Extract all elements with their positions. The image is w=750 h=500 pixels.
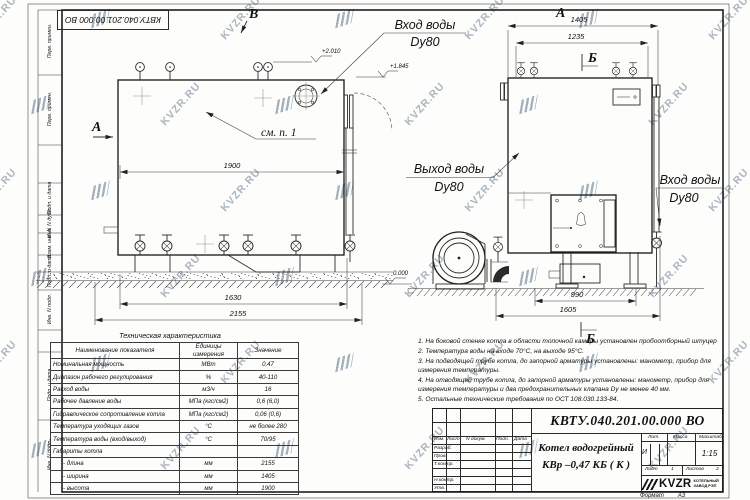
tech-table-cell: 0,06 (0,6) (238, 408, 299, 420)
tech-table-cell: 70/95 (238, 433, 299, 445)
tb-sheet-label: Лист (645, 467, 658, 472)
elevation-mark-pipe: +1.845 (356, 64, 409, 77)
view-arrow-b: В (241, 7, 258, 33)
drawing-sheet: KVZR.RUKVZR.RUKVZR.RUKVZR.RUKVZR.RUKVZR.… (0, 0, 750, 500)
format-value: А3 (678, 493, 685, 499)
furnace-door (551, 195, 616, 252)
inlet-label-side: Вход воды Dy80 (656, 173, 723, 226)
tech-table-cell: Номинальная мощность (51, 359, 180, 371)
svg-text:+2.010: +2.010 (322, 49, 341, 55)
tech-table-cell: Габариты котла (51, 445, 180, 457)
flue-panel (613, 89, 640, 105)
margin-label: Инв. N подл. (47, 279, 53, 339)
svg-text:Dy80: Dy80 (410, 35, 439, 49)
tech-table-row: Рабочее давление водыМПа (кгс/см2)0,6 (6… (51, 396, 299, 408)
tb-row-nkontr: Н.контр. (434, 478, 455, 483)
top-valves (517, 63, 637, 78)
tb-sheets-label: Листов (686, 467, 704, 472)
tech-table-cell: МПа (кгс/см2) (180, 408, 238, 420)
svg-text:+1.845: +1.845 (390, 64, 409, 70)
pressure-gauge-icon (136, 63, 145, 80)
format-label: Формат (640, 493, 664, 499)
tb-lit-value: И (642, 449, 647, 456)
see-ref-callout: см. п. 1 (206, 112, 316, 139)
tech-table-cell: не более 280 (238, 420, 299, 432)
tb-row-prov: Пров. (434, 454, 447, 459)
tech-table-cell: 16 (238, 383, 299, 395)
pressure-gauge-icon (254, 63, 263, 80)
outlet-label-side: Выход воды Dy80 (406, 153, 519, 194)
tb-mass-label: Масса (673, 435, 687, 440)
view-arrow-a-front: А (91, 120, 113, 137)
tb-col-izm: Изм. (434, 437, 444, 442)
tech-table-row: Гидравлическое сопротивление котлаМПа (к… (51, 408, 299, 420)
tb-logo: KVZR КОТЕЛЬНЫЙ ЗАВОД РЭП (641, 475, 724, 493)
pressure-gauge-icon (264, 63, 273, 80)
tech-table-cell: Диапазон рабочего регулирования (51, 371, 180, 383)
tech-table-header-row: Наименование показателя Единицы измерени… (51, 343, 299, 359)
tech-table-row: Диапазон рабочего регулирования%40-110 (51, 371, 299, 383)
technical-notes: 1. На боковой стенке котла в области топ… (418, 337, 720, 405)
tech-table-cell: Температура воды (вход/выход) (51, 433, 180, 445)
tech-table-cell: Расход воды (51, 383, 180, 395)
tech-table-cell: МПа (кгс/см2) (180, 396, 238, 408)
svg-text:1605: 1605 (560, 305, 578, 314)
svg-text:2155: 2155 (229, 309, 248, 318)
title-block: Изм. Лист N докум. Подп. Дата Разраб. Пр… (432, 408, 723, 492)
tech-table-cell: °С (180, 433, 238, 445)
note-item: 5. Остальные технические требования по О… (418, 395, 720, 404)
hatch-lines (37, 274, 392, 279)
svg-text:1630: 1630 (225, 293, 243, 302)
tech-table-cell: мм (180, 482, 238, 494)
tech-table-cell: 2155 (238, 458, 299, 470)
tech-table-row: Габариты котла (51, 445, 299, 457)
tech-table-cell (238, 445, 299, 457)
tech-table: Наименование показателя Единицы измерени… (50, 342, 299, 495)
inlet-label-front: Вход воды Dy80 (321, 18, 466, 94)
dim-1900: 1900 (120, 161, 344, 179)
svg-text:1235: 1235 (568, 32, 586, 41)
tech-table-cell: мм (180, 470, 238, 482)
svg-text:1900: 1900 (224, 161, 242, 170)
tb-product-line1: Котел водогрейный (531, 440, 641, 457)
side-view: А 1405 1235 Б (382, 6, 723, 347)
tech-table-header: Наименование показателя (51, 343, 180, 359)
front-view: +2.010 +1.845 Вход воды Dy80 В (36, 7, 466, 325)
water-inlet-flange (292, 82, 320, 110)
kvzr-logo-subtitle: КОТЕЛЬНЫЙ ЗАВОД РЭП (694, 479, 719, 489)
tech-table-cell: 1900 (238, 482, 299, 494)
svg-text:Б: Б (587, 51, 597, 66)
tech-table-cell: - ширина (51, 470, 180, 482)
dim-2155: 2155 (95, 282, 362, 325)
tech-table-cell: Температура уходящих газов (51, 420, 180, 432)
margin-label: Перв. примен. (47, 11, 53, 71)
tech-table-row: - ширинамм1405 (51, 470, 299, 482)
tech-table-cell: - длина (51, 458, 180, 470)
tb-col-podp: Подп. (496, 437, 509, 442)
tech-table-cell: м3/ч (180, 383, 238, 395)
note-item: 4. На отводящей трубе котла, до запорной… (418, 376, 720, 395)
outlet-pipe-front (342, 93, 392, 262)
format-note: ФорматА3 (640, 493, 740, 499)
tech-table-cell: мм (180, 458, 238, 470)
tech-table-cell: 0,47 (238, 359, 299, 371)
door-handle (577, 213, 586, 226)
supports-side (549, 252, 646, 288)
tech-table-row: Температура воды (вход/выход)°С70/95 (51, 433, 299, 445)
tb-product-line2: КВр –0,47 КБ ( К ) (531, 457, 641, 474)
tb-col-list: Лист (447, 437, 460, 442)
tech-table-cell: Рабочее давление воды (51, 396, 180, 408)
tb-scale-label: Масштаб (699, 435, 722, 440)
outlet-flange-side (501, 83, 509, 100)
tech-characteristics: Техническая характеристика Наименование … (50, 331, 290, 495)
tb-doc-number: КВТУ.040.201.00.000 ВО (531, 409, 724, 433)
tb-row-utv: Утв. (434, 486, 445, 491)
tb-lit-label: Лит. (648, 435, 659, 440)
tech-table-cell: % (180, 371, 238, 383)
tech-table-cell: 40-110 (238, 371, 299, 383)
tech-table-row: Температура уходящих газов°Сне более 280 (51, 420, 299, 432)
tb-row-razr: Разраб. (434, 446, 452, 451)
doc-number-stamp: КВТУ.040.201.00.000 ВО (57, 10, 169, 30)
kvzr-logo-text: KVZR (659, 478, 692, 490)
pressure-gauge-icon (166, 63, 175, 80)
tb-col-data: Дата (514, 437, 527, 442)
tech-table-cell: °С (180, 420, 238, 432)
elevation-mark-top: +2.010 (273, 49, 341, 62)
svg-text:990: 990 (571, 290, 584, 299)
ground-hatch (37, 274, 696, 297)
tech-table-cell (180, 445, 238, 457)
svg-text:0.000: 0.000 (393, 271, 409, 277)
tb-scale-value: 1:15 (695, 449, 724, 458)
svg-text:Вход воды: Вход воды (660, 173, 721, 187)
section-mark-b-top: Б (582, 51, 598, 71)
dim-1605: 1605 (496, 236, 660, 321)
tech-table-cell: МВт (180, 359, 238, 371)
tech-table-row: Номинальная мощностьМВт0,47 (51, 359, 299, 371)
svg-text:см. п. 1: см. п. 1 (261, 127, 296, 139)
tb-product-name: Котел водогрейный КВр –0,47 КБ ( К ) (531, 433, 641, 493)
hatch-lines (37, 281, 388, 288)
svg-text:В: В (248, 7, 258, 22)
tb-col-ndoc: N докум. (466, 437, 486, 442)
tech-table-cell: 1405 (238, 470, 299, 482)
svg-text:Dy80: Dy80 (434, 180, 463, 194)
tech-table-header: Значение (238, 343, 299, 359)
drain-valves (135, 235, 301, 255)
margin-label: Перв. примен. (47, 79, 53, 139)
note-item: 1. На боковой стенке котла в области топ… (418, 337, 720, 346)
svg-text:1405: 1405 (571, 15, 589, 24)
svg-text:А: А (91, 120, 101, 135)
view-label-a-side: А (555, 6, 565, 21)
tb-sheets-value: 2 (716, 467, 719, 472)
doc-number-stamp-text: КВТУ.040.201.00.000 ВО (65, 15, 161, 25)
svg-text:Выход воды: Выход воды (414, 162, 484, 176)
tech-table-cell: Гидравлическое сопротивление котла (51, 408, 180, 420)
dim-990: 990 (535, 288, 636, 306)
tech-table-cell: 0,6 (6,0) (238, 396, 299, 408)
hatch-lines (410, 289, 696, 296)
note-item: 3. На подводящей трубе котла, до запорно… (418, 357, 720, 376)
duct-elbow (493, 266, 509, 282)
svg-text:Вход воды: Вход воды (395, 18, 456, 32)
tech-table-row: Расход водым3/ч16 (51, 383, 299, 395)
tech-table-row: - длинамм2155 (51, 458, 299, 470)
tech-table-row: - высотамм1900 (51, 482, 299, 494)
note-item: 2. Температура воды на входе 70°С, на вы… (418, 347, 720, 356)
svg-text:Dy80: Dy80 (669, 191, 698, 205)
kvzr-logo-icon (641, 479, 660, 490)
blower-fan (433, 232, 509, 289)
kvzr-logo-sub2: ЗАВОД РЭП (694, 484, 719, 489)
tb-row-tkontr: Т.контр. (434, 462, 454, 467)
tech-table-title: Техническая характеристика (50, 331, 290, 340)
tech-table-header: Единицы измерения (180, 343, 238, 359)
supports-front (135, 255, 335, 272)
tb-sheet-value: 1 (671, 467, 674, 472)
dim-1405: 1405 (508, 15, 658, 86)
tech-table-cell: - высота (51, 482, 180, 494)
